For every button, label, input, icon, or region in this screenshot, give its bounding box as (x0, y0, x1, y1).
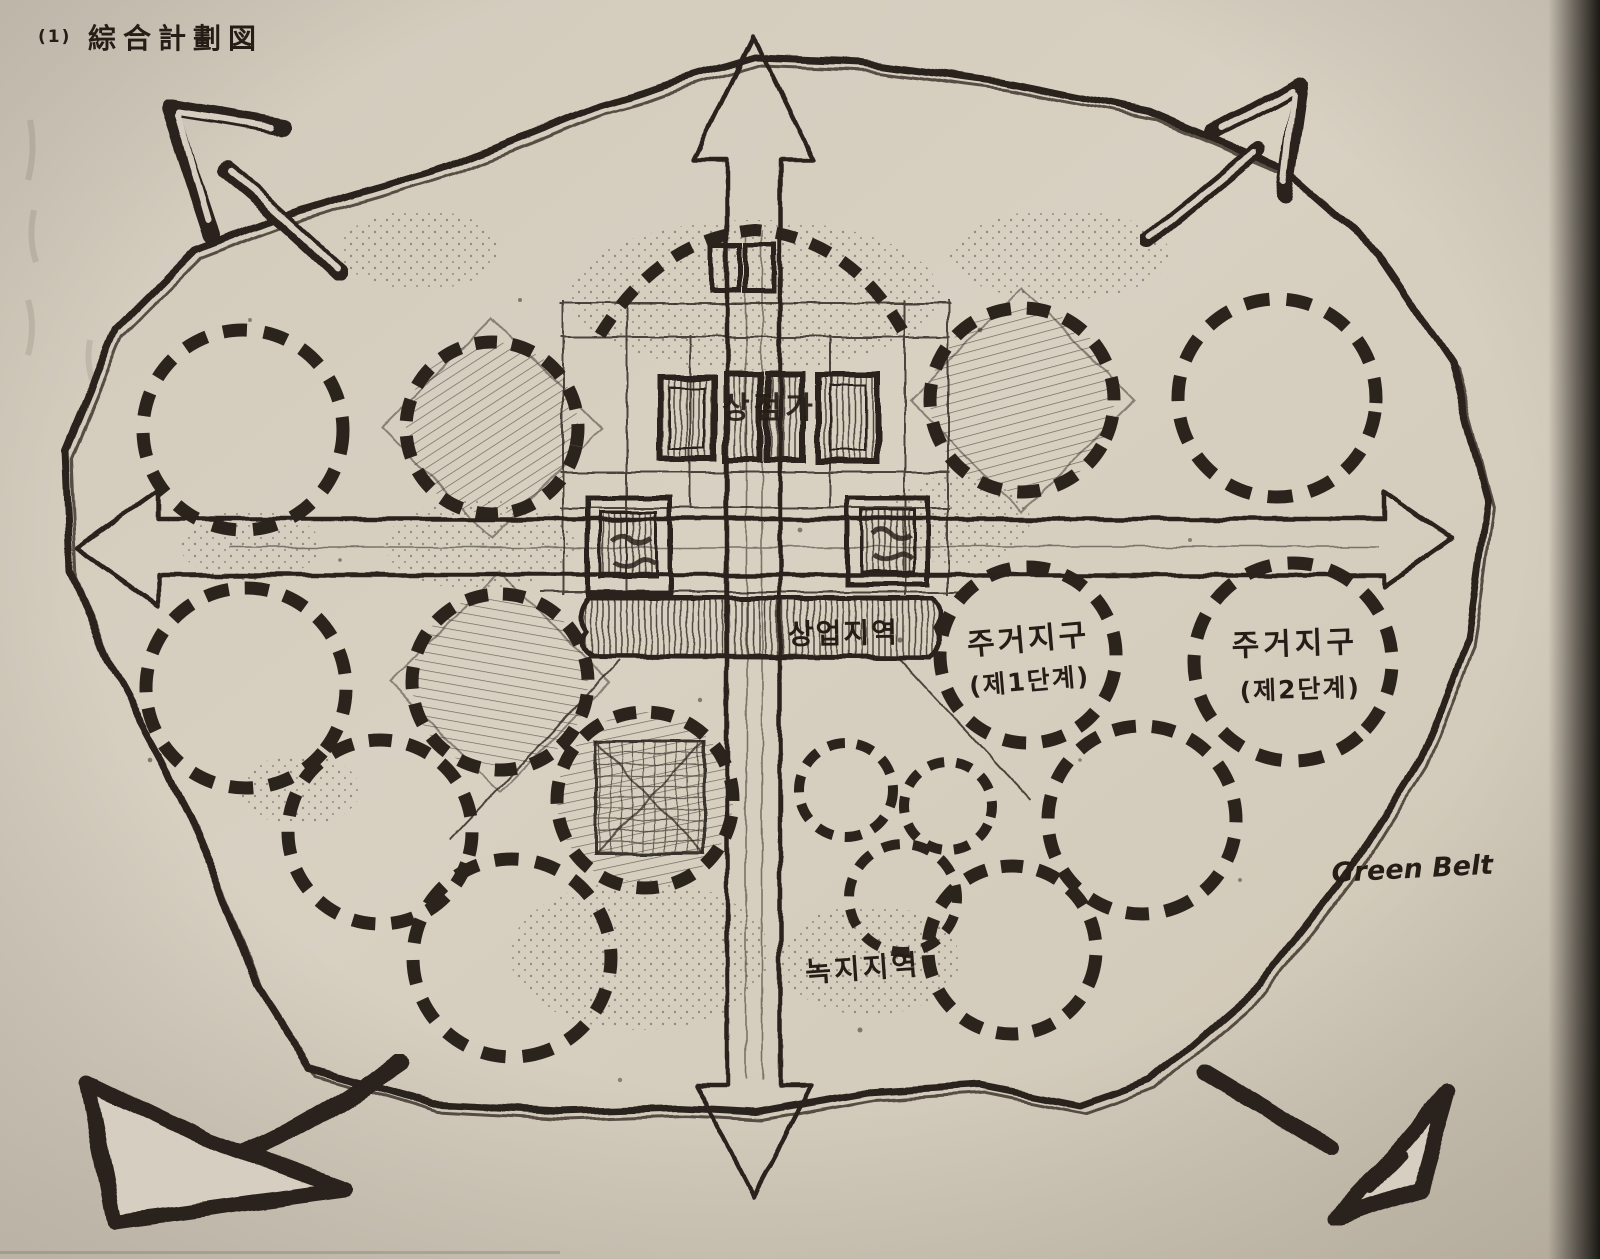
civic-building (660, 378, 714, 458)
scanned-plan-page: (1) 綜合計劃図 상점가 상업지역 주거지구 (제1단계) 주거지구 (제2단… (0, 0, 1600, 1259)
scan-right-edge (1548, 0, 1600, 1259)
master-plan-figure: (1) 綜合計劃図 상점가 상업지역 주거지구 (제1단계) 주거지구 (제2단… (0, 0, 1600, 1259)
crosshatch-block (596, 742, 704, 854)
page-title: 綜合計劃図 (88, 22, 263, 55)
scan-bottom-crease (0, 1251, 560, 1254)
residential2-label-line2: (제2단계) (1239, 673, 1361, 706)
residential2-label-line1: 주거지구 (1231, 625, 1359, 664)
civic-building (818, 375, 878, 461)
civic-stamp-label: 상점가 (722, 391, 817, 426)
commercial-zone-label: 상업지역 (788, 616, 900, 651)
scan-index: (1) (38, 27, 71, 47)
